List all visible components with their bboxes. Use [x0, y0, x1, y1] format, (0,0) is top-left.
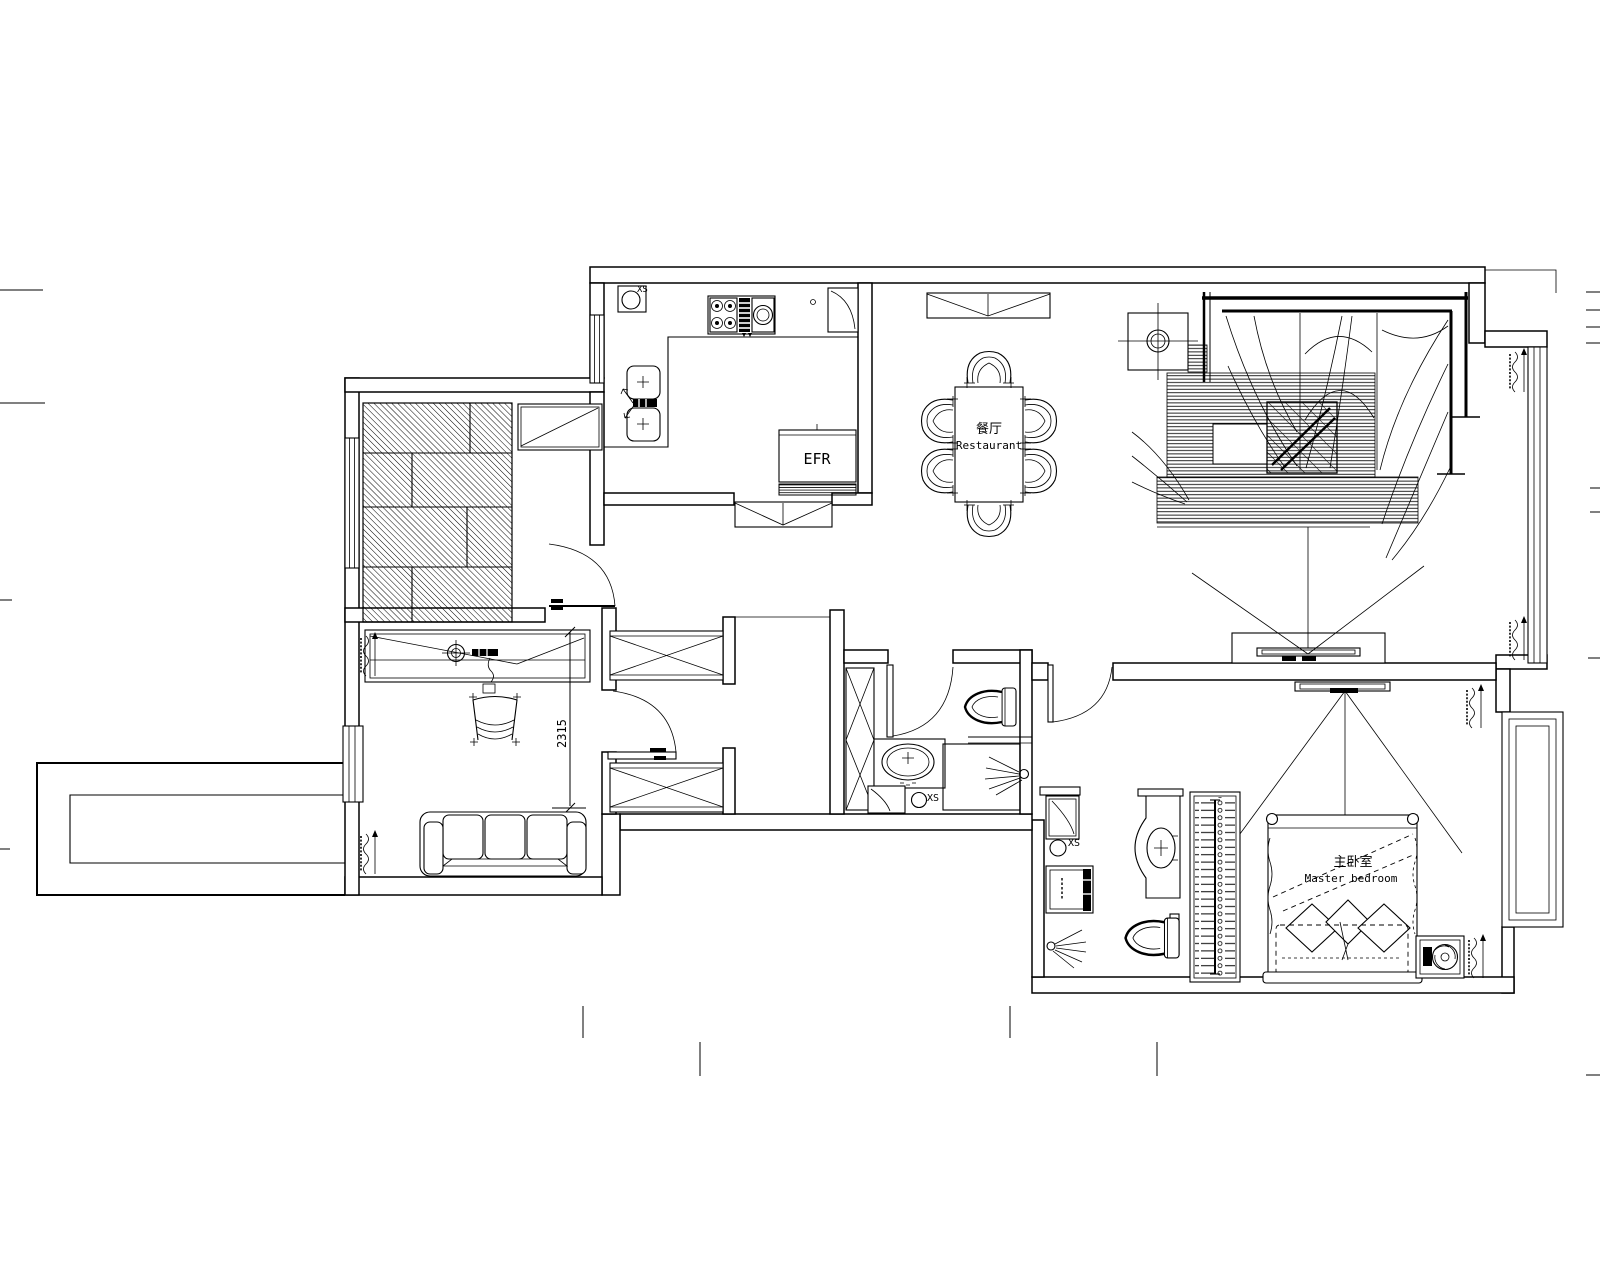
wardrobe [1190, 792, 1240, 982]
floor-plan-canvas: XS EFR [0, 0, 1600, 1280]
dining-label-en: Restaurant [956, 439, 1022, 452]
dining-area: 餐厅 Restaurant [922, 293, 1057, 537]
desk [365, 630, 590, 693]
wall-top [590, 267, 1485, 283]
dining-chair [922, 446, 959, 496]
faucet [633, 399, 657, 407]
kitchen-sink [621, 366, 660, 441]
master-shower-head [1047, 930, 1086, 968]
radiator [1467, 684, 1484, 728]
floor-pillow [1267, 402, 1337, 473]
kitchen-xs-label: XS [637, 285, 648, 295]
kitchen-door [828, 288, 858, 332]
toilet [965, 688, 1016, 726]
master-suite: XS 主卧室 Master bedroom [1046, 665, 1486, 983]
kitchen: XS EFR [604, 285, 858, 527]
keyboard [472, 649, 498, 656]
bathroom: XS [846, 665, 1032, 813]
side-table [1118, 303, 1198, 380]
window-band-right [1528, 347, 1547, 663]
bay-window-master [1502, 712, 1563, 927]
dining-chair [964, 500, 1014, 537]
shower-area [943, 737, 1032, 810]
dining-chair [922, 396, 959, 446]
study-room: 2315 [361, 627, 590, 876]
radiator [361, 830, 378, 874]
master-toilet [1126, 914, 1180, 958]
dining-vent [927, 293, 1050, 318]
bath-door [887, 665, 953, 737]
radiator [1510, 616, 1527, 660]
radiator [1510, 348, 1527, 392]
balcony [37, 763, 345, 895]
sofa [420, 812, 586, 876]
tatami-platform [363, 403, 512, 622]
master-xs-label: XS [1068, 838, 1080, 849]
living-area [1118, 292, 1480, 663]
tatami-door [549, 544, 615, 610]
dining-label-cn: 餐厅 [976, 421, 1002, 437]
cooktop [708, 296, 775, 337]
floor-drain: XS [868, 786, 939, 813]
tv-cabinet-living [1232, 633, 1385, 663]
headboard [1263, 972, 1422, 983]
rug-band [1157, 477, 1418, 523]
window-kitchen-left [590, 315, 604, 383]
bath-xs-label: XS [927, 793, 939, 804]
wall-tv [1113, 663, 1496, 680]
hall-cabinet-bottom [610, 763, 723, 812]
tatami-room [363, 403, 615, 622]
dimension-text: 2315 [555, 719, 569, 748]
floor-plan-drawing: XS EFR [0, 0, 1600, 1280]
tv-projection-living [1192, 527, 1424, 654]
dining-chair [1020, 396, 1057, 446]
ac-unit [1416, 936, 1464, 978]
hall-cabinet-top [610, 631, 723, 680]
fridge-label: EFR [803, 450, 831, 468]
bath-sink [874, 739, 945, 788]
master-door [1048, 665, 1112, 722]
window-tatami-left [345, 438, 359, 568]
dining-chair [964, 352, 1014, 389]
master-shower-box [1046, 796, 1079, 839]
dining-chair [1020, 446, 1057, 496]
tatami-cabinet [518, 404, 602, 450]
refrigerator: EFR [779, 424, 856, 495]
rug-cutout [1213, 424, 1267, 464]
door-knob [811, 300, 816, 305]
master-label-en: Master bedroom [1305, 872, 1398, 885]
desk-chair [469, 693, 521, 746]
master-label-cn: 主卧室 [1333, 854, 1372, 870]
study-door [608, 691, 676, 760]
hallway [608, 631, 723, 812]
bed: 主卧室 Master bedroom [1263, 814, 1422, 984]
gas-meter: XS [618, 285, 648, 312]
vanity [1135, 796, 1180, 898]
master-drain: XS [1050, 838, 1080, 856]
kitchen-pass-vent [735, 502, 832, 527]
shower-head [985, 757, 1022, 795]
window-balcony [343, 726, 363, 802]
radiator [1469, 934, 1486, 978]
washing-machine [1046, 866, 1093, 913]
